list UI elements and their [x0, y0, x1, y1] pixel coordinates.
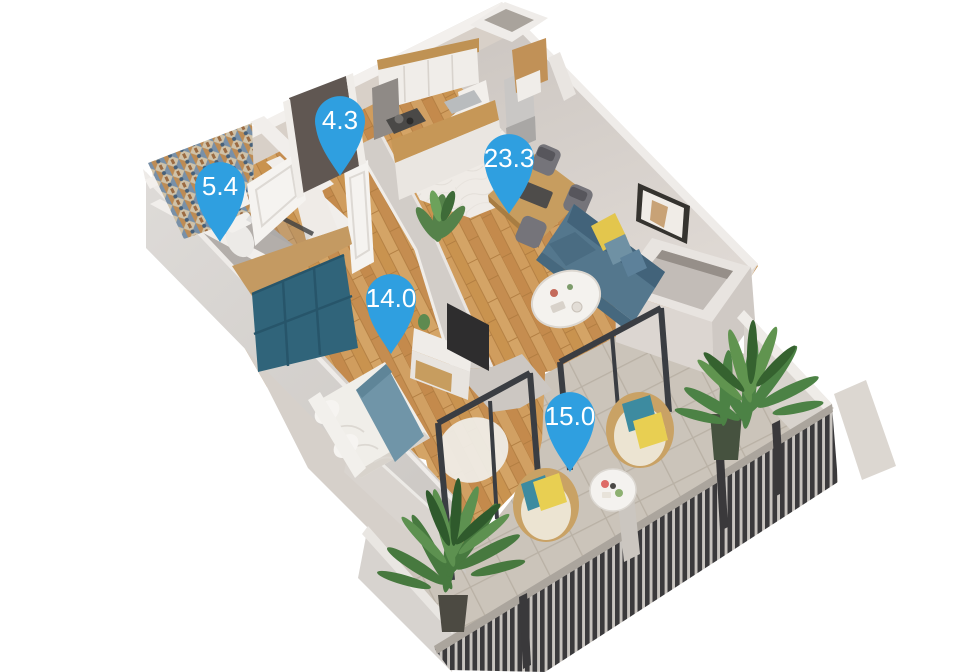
svg-text:5.4: 5.4	[202, 171, 238, 201]
svg-text:15.0: 15.0	[545, 401, 596, 431]
svg-text:14.0: 14.0	[366, 283, 417, 313]
svg-text:4.3: 4.3	[322, 105, 358, 135]
svg-text:23.3: 23.3	[484, 143, 535, 173]
